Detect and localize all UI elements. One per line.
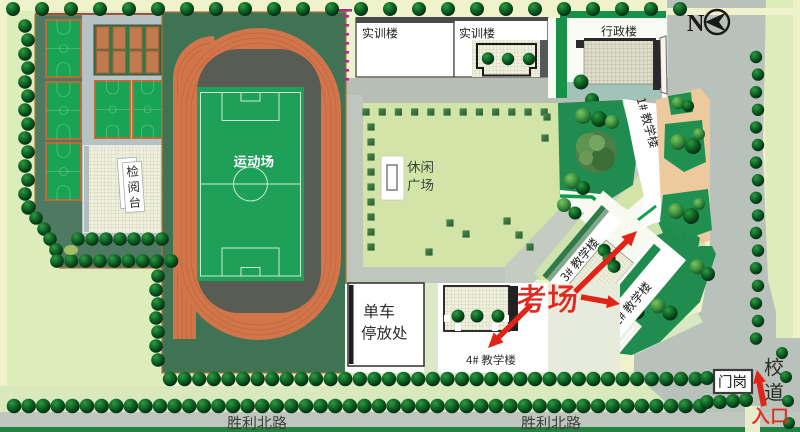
svg-text:N: N xyxy=(687,11,705,37)
